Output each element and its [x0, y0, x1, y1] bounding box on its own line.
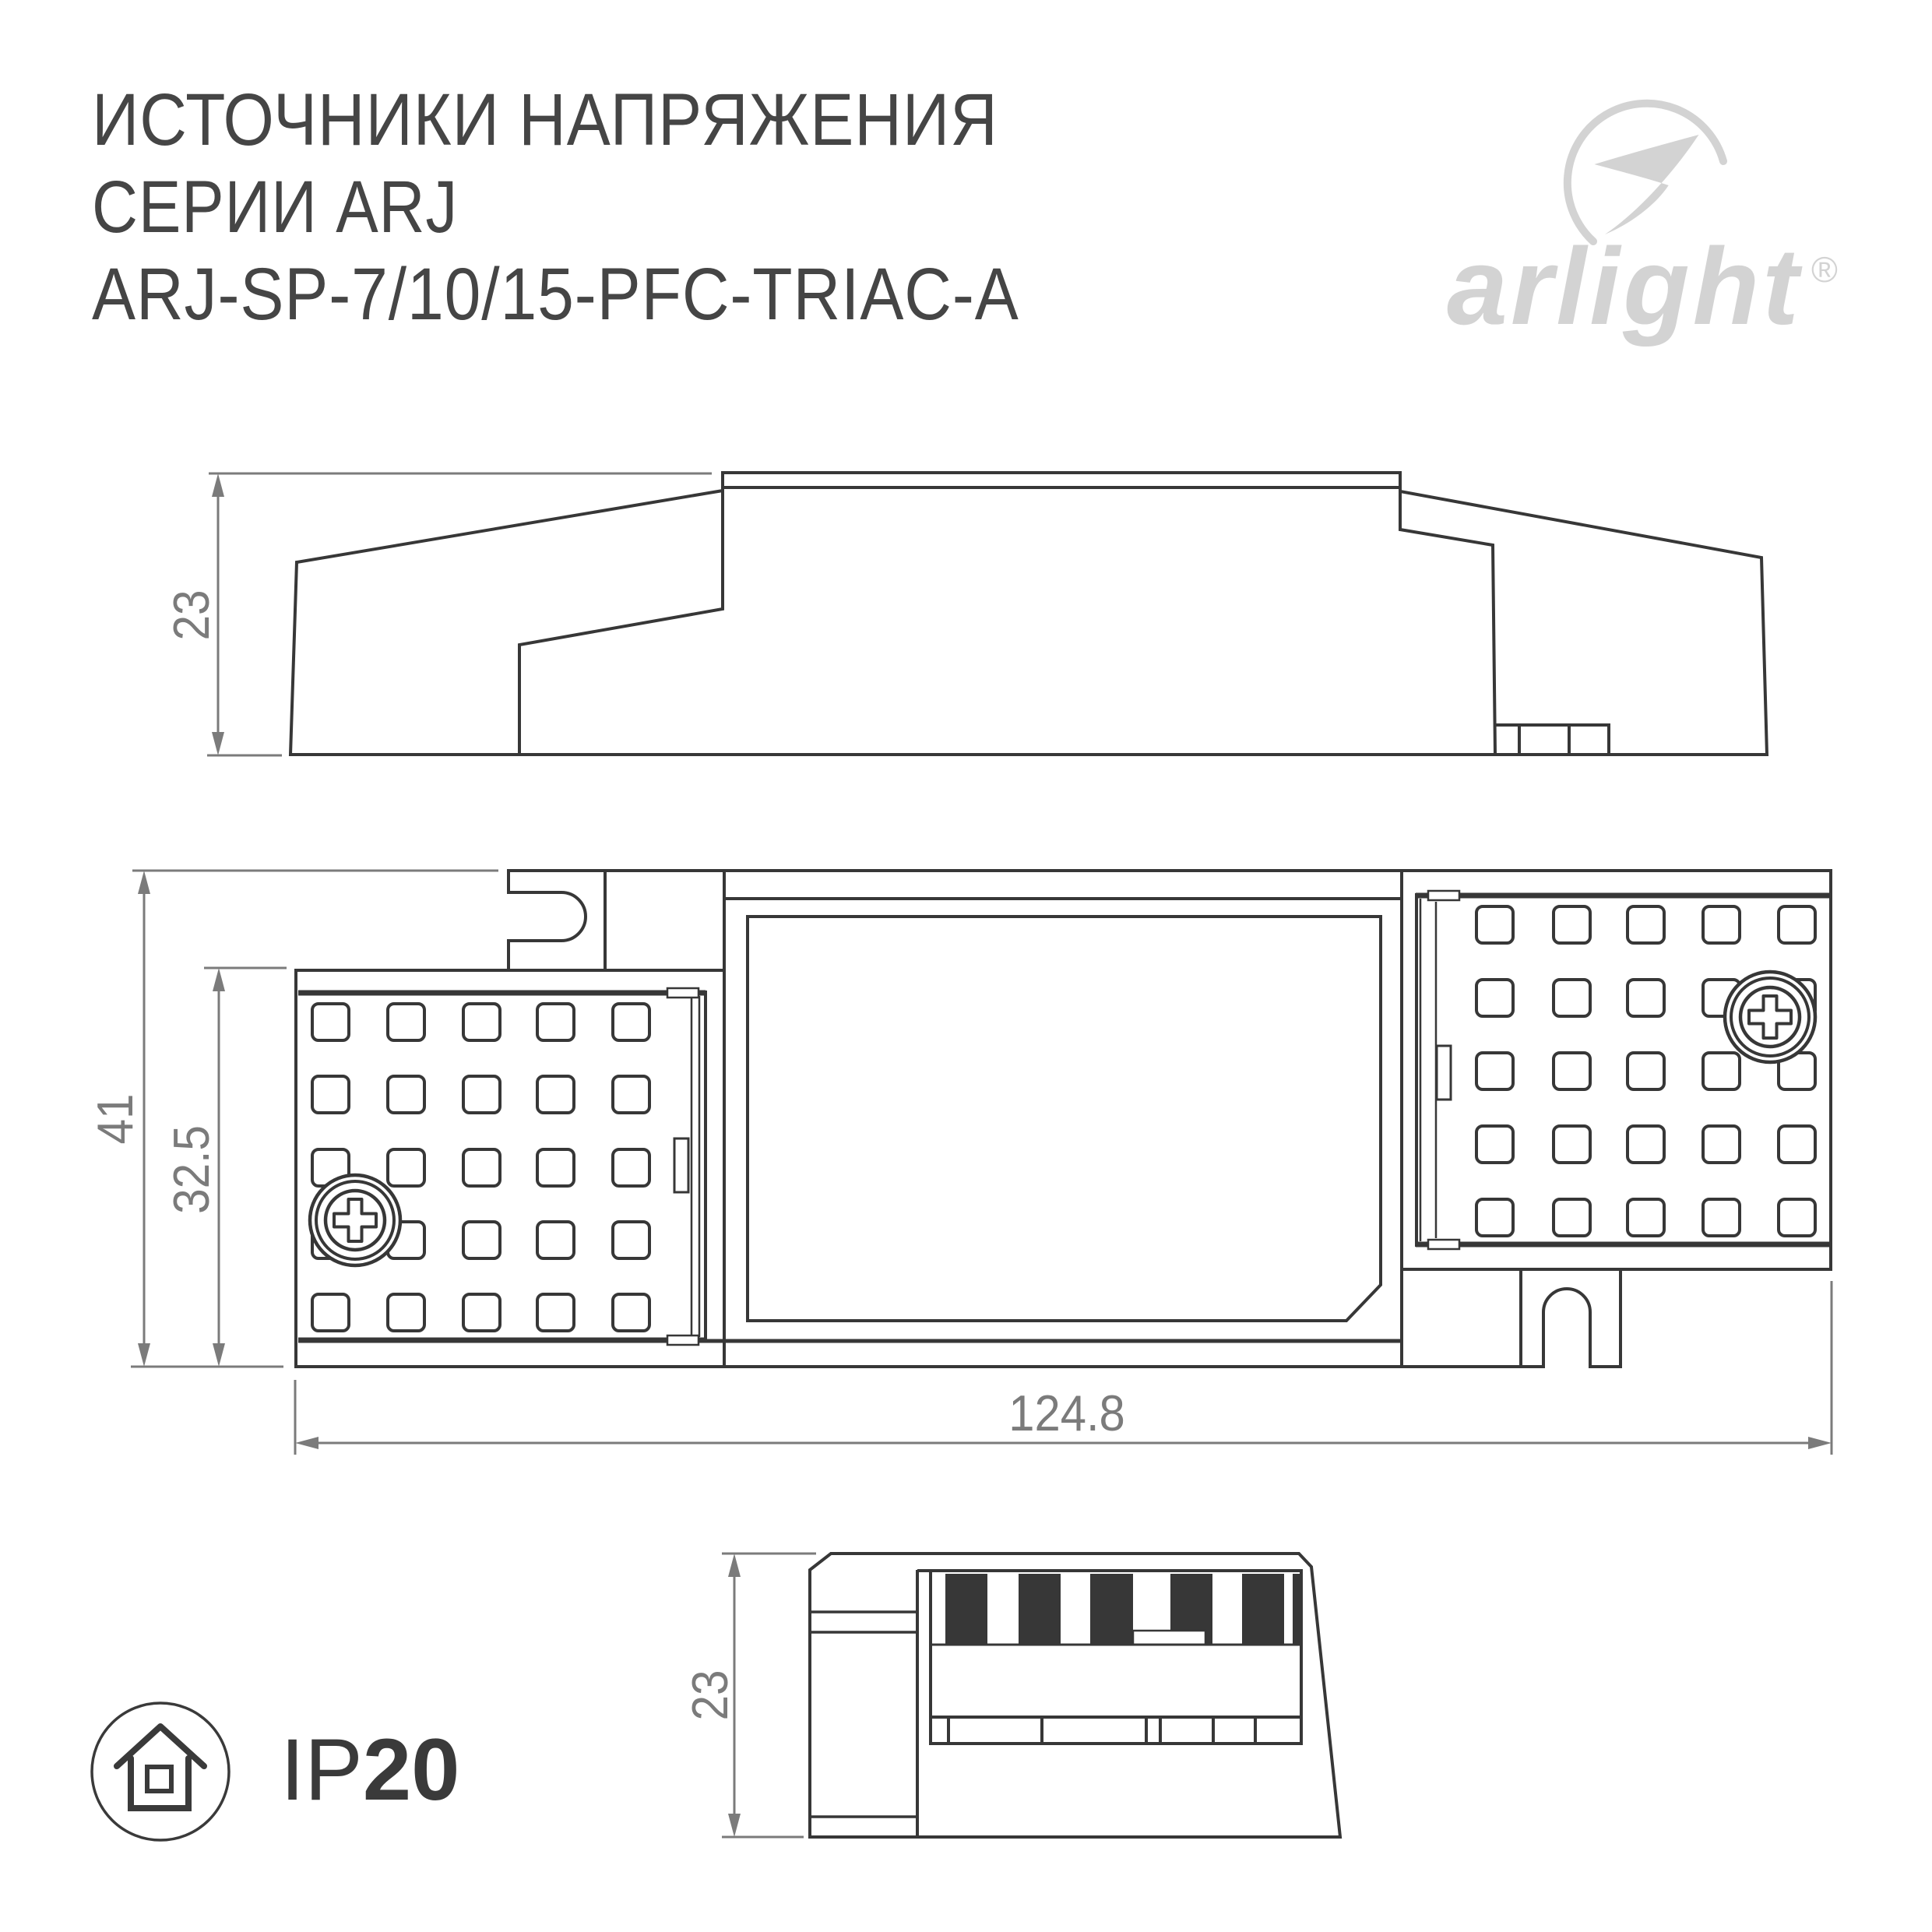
- svg-text:ИСТОЧНИКИ НАПРЯЖЕНИЯ: ИСТОЧНИКИ НАПРЯЖЕНИЯ: [92, 79, 998, 161]
- svg-text:41: 41: [87, 1093, 144, 1144]
- svg-text:IP20: IP20: [280, 1721, 459, 1818]
- svg-text:ARJ-SP-7/10/15-PFC-TRIAC-A: ARJ-SP-7/10/15-PFC-TRIAC-A: [92, 253, 1019, 336]
- svg-text:32.5: 32.5: [164, 1125, 220, 1214]
- svg-text:23: 23: [682, 1670, 739, 1720]
- svg-text:23: 23: [164, 589, 220, 640]
- svg-text:СЕРИИ ARJ: СЕРИИ ARJ: [92, 165, 458, 248]
- svg-text:arlight: arlight: [1447, 225, 1803, 347]
- svg-text:124.8: 124.8: [1008, 1385, 1125, 1442]
- svg-text:®: ®: [1811, 249, 1838, 290]
